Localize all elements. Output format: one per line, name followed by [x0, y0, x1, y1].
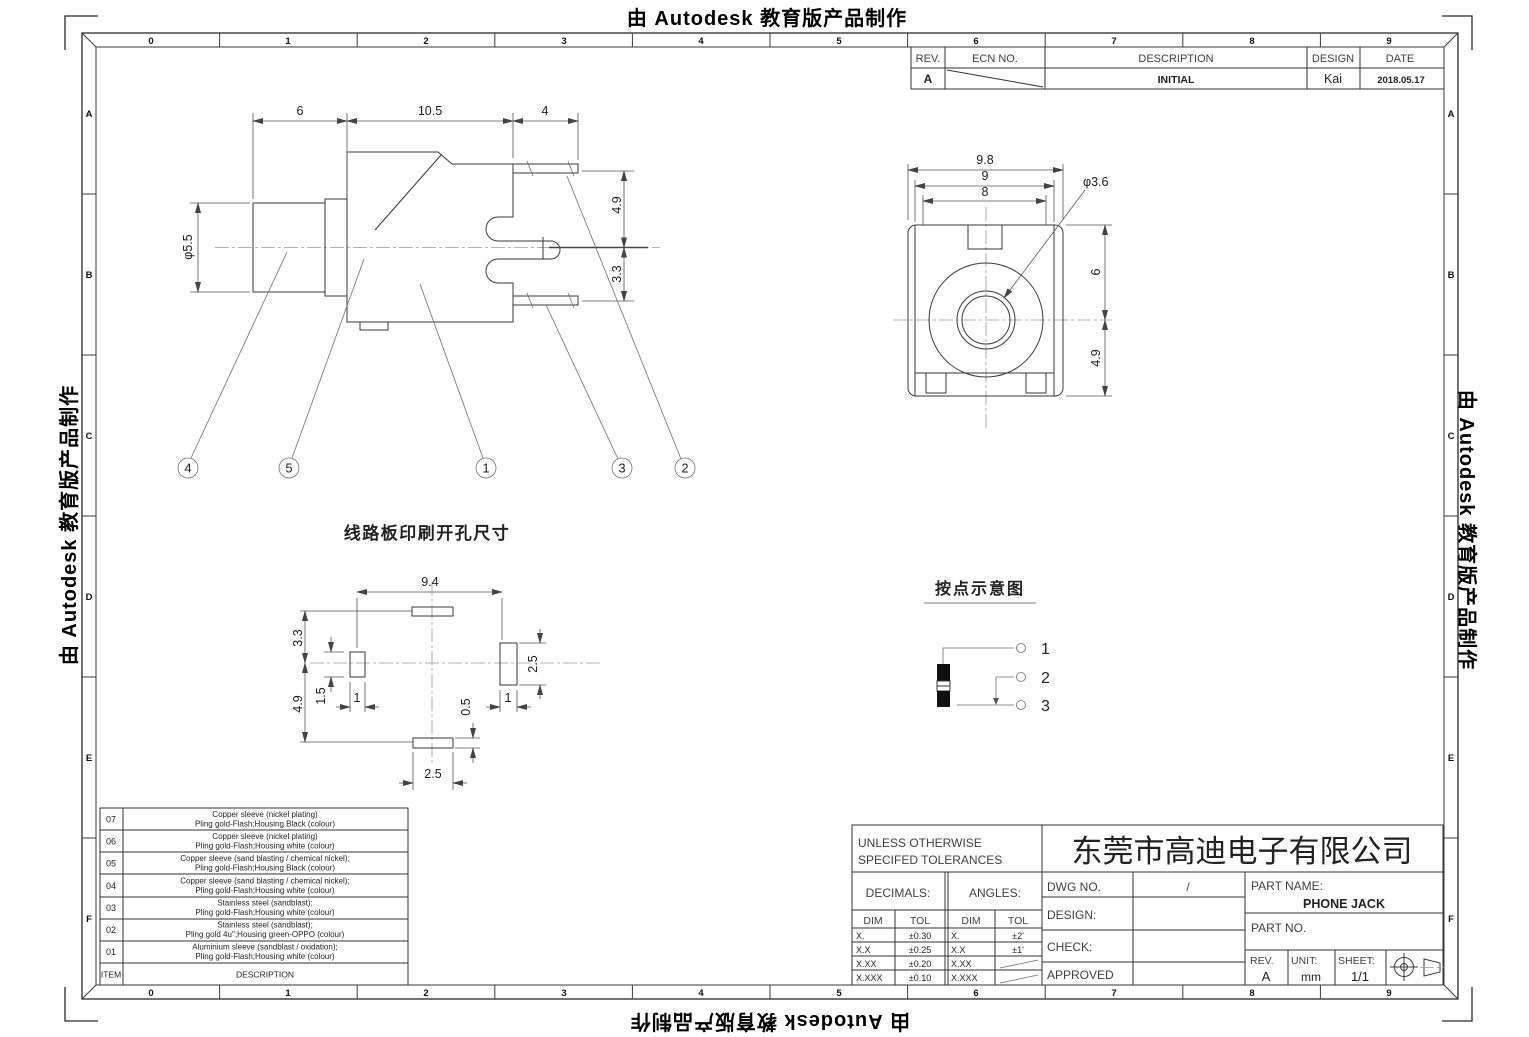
material-desc-line: Pling gold-Flash;Housing Black (colour)	[195, 820, 335, 829]
frame-col-label: 3	[561, 36, 566, 47]
material-desc-line: Copper sleeve (nickel plating)	[212, 810, 318, 819]
pin-node-3	[1017, 701, 1026, 710]
pin-label-1: 1	[1041, 641, 1050, 658]
balloon-1: 1	[482, 461, 489, 476]
material-desc-line: Pling gold-Flash;Housing white (colour)	[195, 908, 335, 917]
pin-node-2	[1017, 673, 1026, 682]
angle-dim: X.XX	[951, 959, 972, 969]
bottom-terminal-pin	[513, 296, 578, 305]
item-no: 01	[106, 947, 116, 957]
material-desc-line: Pling gold 4u'';Housing green-OPPO (colo…	[186, 930, 345, 939]
housing-chamfer-line	[375, 155, 441, 230]
description-header: DESCRIPTION	[1138, 53, 1213, 65]
dim-4: 4	[542, 104, 549, 118]
item-no: 02	[106, 925, 116, 935]
ecn-diagonal	[947, 70, 1043, 87]
pcb-pad-left	[350, 652, 365, 677]
material-desc-line: Pling gold-Flash;Housing white (colour)	[195, 952, 335, 961]
frame-col-label: 7	[1111, 36, 1116, 47]
tol-col-header: TOL	[910, 915, 930, 927]
frame-col-label: 1	[285, 36, 291, 47]
description-value: INITIAL	[1158, 74, 1195, 86]
part-no-label: PART NO.	[1251, 921, 1306, 935]
frame-col-label: 1	[285, 988, 291, 999]
design-header: DESIGN	[1312, 53, 1354, 65]
ruler-row-labels-left: A B C D E F	[86, 109, 93, 925]
decimal-dim: X.	[856, 931, 865, 941]
pin-label-2: 2	[1041, 670, 1050, 687]
part-name-value: PHONE JACK	[1303, 897, 1385, 911]
decimal-dim: X.X	[856, 945, 871, 955]
front-view: 9.8 9 8 φ3.6 6 4.9	[893, 153, 1112, 428]
dim-6: 6	[297, 104, 304, 118]
pin-wire-arrow	[993, 698, 999, 705]
part-name-label: PART NAME:	[1251, 879, 1323, 893]
part-balloons: 4 5 1 3 2	[178, 176, 695, 478]
dim-col-header: DIM	[863, 915, 882, 927]
frame-col-label: 8	[1249, 988, 1254, 999]
approved-label: APPROVED	[1047, 968, 1114, 982]
check-label: CHECK:	[1047, 940, 1092, 954]
frame-col-label: 8	[1249, 36, 1254, 47]
dim-10-5: 10.5	[418, 104, 442, 118]
frame-row-label: D	[1448, 592, 1455, 603]
title-block: UNLESS OTHERWISE SPECIFED TOLERANCES DEC…	[852, 825, 1444, 985]
frame-row-label: F	[86, 914, 92, 925]
tol-col-header: TOL	[1008, 915, 1028, 927]
frame-col-label: 2	[423, 36, 428, 47]
decimal-dim: X.XXX	[856, 973, 883, 983]
watermark-left: 由 Autodesk 教育版产品制作	[57, 385, 81, 665]
rev-header: REV.	[916, 53, 941, 65]
dim-4-9-front: 4.9	[1089, 349, 1103, 366]
ruler-ticks-top	[220, 33, 1321, 47]
pin-diagram-title: 按点示意图	[935, 579, 1025, 598]
frame-row-label: A	[1448, 109, 1455, 120]
frame-row-label: C	[1448, 431, 1455, 442]
material-desc-line: Stainless steel (sandblast);	[217, 921, 313, 930]
dim-4-9-pcb: 4.9	[291, 695, 305, 712]
dim-hole-3-6: φ3.6	[1083, 175, 1109, 189]
frame-col-label: 6	[973, 988, 978, 999]
unit-value: mm	[1301, 970, 1321, 984]
front-inner-walls	[915, 225, 1054, 396]
dim-3-3: 3.3	[610, 265, 624, 282]
trim-mark-bottom-right	[1442, 987, 1472, 1021]
frame-row-label: E	[1448, 753, 1454, 764]
dim-3-3-pcb: 3.3	[291, 629, 305, 646]
frame-row-label: B	[86, 270, 93, 281]
material-desc-line: Aluminium sleeve (sandblast / oxidation)…	[192, 943, 337, 952]
ruler-ticks-bottom	[220, 985, 1321, 999]
decimal-tol: ±0.10	[909, 973, 931, 983]
date-value: 2018.05.17	[1377, 75, 1425, 86]
frame-col-label: 0	[148, 36, 153, 47]
frame-col-label: 5	[836, 36, 842, 47]
sheet-value: 1/1	[1351, 969, 1369, 984]
material-desc-line: Pling gold-Flash;Housing Black (colour)	[195, 864, 335, 873]
top-terminal-pin	[513, 164, 578, 173]
item-no: 06	[106, 837, 116, 847]
angle-dim: X.X	[951, 945, 966, 955]
ruler-ticks-left	[82, 194, 96, 838]
plug-sleeve-segment	[937, 691, 950, 707]
frame-row-label: D	[86, 592, 93, 603]
side-view: 6 10.5 4 φ5.5 4.9 3.3 4 5 1 3 2	[178, 104, 695, 478]
ecn-header: ECN NO.	[972, 53, 1018, 65]
material-desc-line: Copper sleeve (nickel plating)	[212, 832, 318, 841]
dim-9-8: 9.8	[976, 153, 993, 167]
pin-wires	[943, 648, 1014, 705]
cad-drawing-page: 由 Autodesk 教育版产品制作 由 Autodesk 教育版产品制作 由 …	[0, 0, 1529, 1037]
dim-col-header: DIM	[961, 915, 980, 927]
frame-col-label: 4	[698, 36, 704, 47]
balloon-2: 2	[681, 461, 688, 476]
dwg-no-value: /	[1186, 880, 1190, 894]
frame-col-label: 7	[1111, 988, 1116, 999]
item-no: 05	[106, 859, 116, 869]
pcb-view: 线路板印刷开孔尺寸 9.4 3.3 4.9 1.5 1 2.5	[291, 523, 600, 790]
front-foot-right	[1026, 373, 1046, 393]
frame-col-label: 4	[698, 988, 704, 999]
pcb-pad-right	[500, 643, 517, 685]
frame-row-label: E	[86, 753, 92, 764]
watermark-top: 由 Autodesk 教育版产品制作	[627, 6, 907, 30]
frame-row-label: A	[86, 109, 93, 120]
material-desc-line: Stainless steel (sandblast);	[217, 899, 313, 908]
plug-tip-segment	[937, 664, 950, 681]
angle-tol-slashes	[1000, 960, 1038, 983]
unit-label: UNIT:	[1291, 955, 1317, 967]
pin-label-3: 3	[1041, 698, 1050, 715]
dim-9: 9	[982, 169, 989, 183]
dim-2-5-right: 2.5	[526, 655, 540, 672]
balloon-4: 4	[184, 461, 191, 476]
dim-0-5: 0.5	[459, 698, 473, 715]
front-foot-left	[926, 373, 946, 393]
tolerance-note-line2: SPECIFED TOLERANCES	[858, 853, 1002, 867]
angle-dim: X.	[951, 931, 960, 941]
dim-dia-5-5: φ5.5	[181, 234, 195, 260]
frame-col-label: 3	[561, 988, 566, 999]
item-no: 07	[106, 815, 116, 825]
frame-row-label: F	[1448, 914, 1454, 925]
rev-value: A	[1262, 969, 1271, 984]
pcb-pad-top	[412, 607, 453, 616]
decimal-tol: ±0.20	[909, 959, 931, 969]
frame-col-label: 0	[148, 988, 153, 999]
frame-col-label: 9	[1386, 988, 1391, 999]
item-no: 04	[106, 881, 116, 891]
rev-value: A	[924, 72, 933, 86]
dim-9-4: 9.4	[421, 575, 438, 589]
item-header: ITEM	[101, 970, 121, 980]
frame-col-label: 2	[423, 988, 428, 999]
balloon-5: 5	[285, 461, 292, 476]
frame-col-label: 6	[973, 36, 978, 47]
design-label: DESIGN:	[1047, 908, 1096, 922]
dim-1-right: 1	[505, 691, 512, 705]
design-value: Kai	[1324, 72, 1342, 86]
decimals-label: DECIMALS:	[866, 886, 931, 900]
angle-tol: ±1'	[1012, 945, 1024, 955]
date-header: DATE	[1386, 53, 1415, 65]
frame-col-label: 5	[836, 988, 842, 999]
decimal-tol: ±0.30	[909, 931, 931, 941]
angles-label: ANGLES:	[969, 886, 1021, 900]
company-name: 东莞市高迪电子有限公司	[1072, 834, 1413, 869]
dwg-no-label: DWG NO.	[1047, 880, 1101, 894]
material-desc-line: Copper sleeve (sand blasting / chemical …	[180, 877, 349, 886]
materials-table: 07 06 05 04 03 02 01 ITEM Copper sleeve …	[100, 808, 408, 985]
front-top-notch	[968, 225, 1002, 249]
tolerance-note-line1: UNLESS OTHERWISE	[858, 836, 982, 850]
material-desc-line: Pling gold-Flash;Housing white (colour)	[195, 842, 335, 851]
dim-8: 8	[982, 185, 989, 199]
frame-row-label: C	[86, 431, 93, 442]
ruler-ticks-right	[1444, 194, 1458, 838]
dim-2-5-bottom: 2.5	[424, 767, 441, 781]
projection-symbol-icon	[1390, 953, 1444, 981]
drawing-canvas: 由 Autodesk 教育版产品制作 由 Autodesk 教育版产品制作 由 …	[0, 0, 1529, 1037]
revision-table: REV. ECN NO. DESCRIPTION DESIGN DATE A I…	[911, 47, 1444, 89]
balloon-3: 3	[618, 461, 625, 476]
angle-tol: ±2'	[1012, 931, 1024, 941]
item-no: 03	[106, 903, 116, 913]
watermark-bottom: 由 Autodesk 教育版产品制作	[630, 1010, 910, 1034]
decimal-tol: ±0.25	[909, 945, 931, 955]
description-header: DESCRIPTION	[236, 970, 294, 980]
pcb-title: 线路板印刷开孔尺寸	[344, 523, 511, 543]
pin-crimp-ticks	[527, 161, 574, 308]
pin-node-1	[1017, 644, 1026, 653]
housing-bottom-tab	[360, 322, 388, 330]
sheet-label: SHEET:	[1338, 955, 1375, 967]
material-desc-line: Copper sleeve (sand blasting / chemical …	[180, 854, 349, 863]
angle-dim: X.XXX	[951, 973, 978, 983]
pcb-pad-bottom	[413, 738, 453, 748]
rev-label: REV.	[1250, 955, 1274, 967]
material-desc-line: Pling gold-Flash;Housing white (colour)	[195, 886, 335, 895]
dim-4-9: 4.9	[610, 196, 624, 213]
dim-1-left: 1	[354, 691, 361, 705]
decimal-dim: X.XX	[856, 959, 877, 969]
dim-1-5: 1.5	[314, 687, 328, 704]
frame-col-label: 9	[1386, 36, 1391, 47]
dim-6-front: 6	[1089, 268, 1103, 275]
pin-diagram: 按点示意图 1 2 3	[924, 579, 1050, 715]
ruler-row-labels-right: A B C D E F	[1448, 109, 1455, 925]
frame-row-label: B	[1448, 270, 1455, 281]
